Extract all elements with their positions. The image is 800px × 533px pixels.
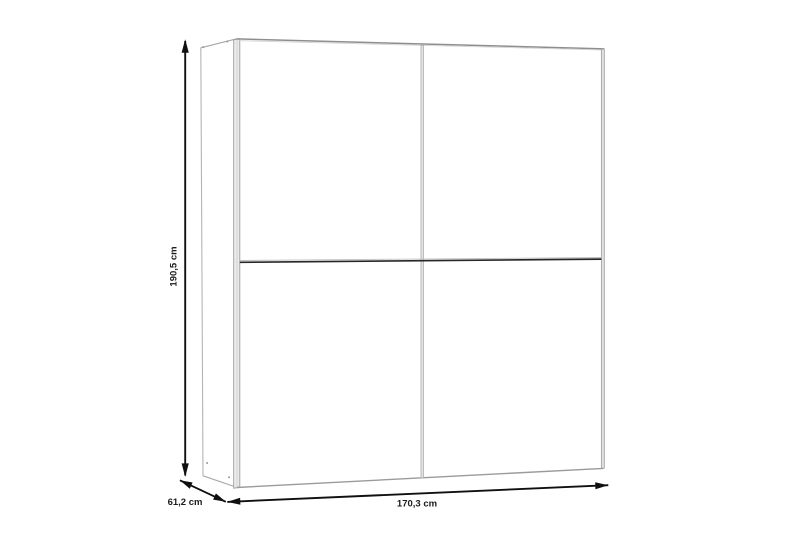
connector-dot: [228, 476, 230, 478]
bottom-edge-line: [237, 468, 603, 487]
depth-arrowhead-back: [180, 480, 193, 488]
top-edge-line: [237, 39, 605, 49]
side-panel-bottom-edge: [203, 476, 237, 488]
width-dimension: 170,3 cm: [227, 482, 608, 509]
connector-dot: [226, 41, 228, 43]
side-panel-back-edge: [201, 48, 203, 476]
height-arrowhead-bottom: [182, 463, 189, 477]
front-left-edge: [234, 39, 240, 488]
door-divider-strip: [421, 45, 423, 478]
connector-dot: [206, 462, 208, 464]
width-dimension-label: 170,3 cm: [397, 499, 437, 510]
side-panel: [201, 39, 237, 488]
wardrobe-outline: [201, 39, 605, 488]
height-dimension-label: 190,5 cm: [169, 246, 180, 286]
depth-dimension: 61,2 cm: [168, 480, 226, 508]
depth-dimension-label: 61,2 cm: [168, 497, 203, 508]
connector-dots: [202, 41, 230, 479]
wardrobe-drawing: 190,5 cm 61,2 cm 170,3 cm: [0, 0, 800, 533]
top-edge: [237, 39, 605, 50]
width-arrowhead-right: [595, 482, 608, 489]
depth-arrowhead-front: [213, 493, 226, 501]
product-dimension-diagram: 190,5 cm 61,2 cm 170,3 cm: [0, 0, 800, 533]
side-panel-top-edge: [201, 39, 237, 48]
right-edge-strip: [601, 49, 604, 468]
height-dimension: 190,5 cm: [169, 39, 189, 477]
connector-dot: [202, 46, 204, 48]
height-arrowhead-top: [182, 39, 189, 53]
